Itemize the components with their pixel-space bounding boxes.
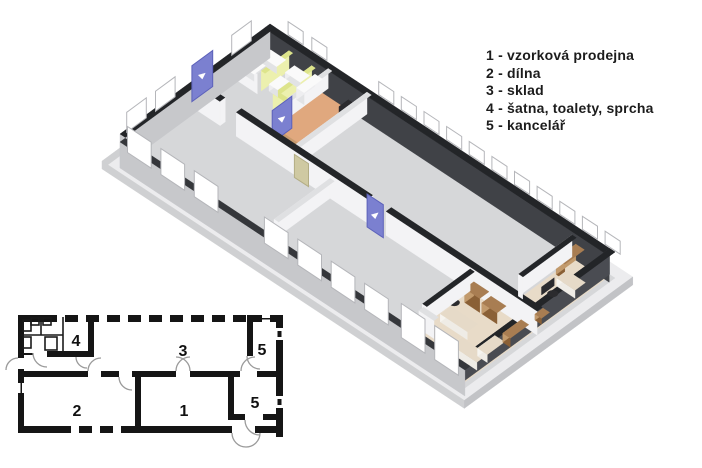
wall	[101, 371, 119, 377]
wall	[276, 408, 283, 437]
window-line	[21, 383, 23, 393]
toilet-fixture	[23, 337, 31, 348]
room-label-4: 4	[72, 333, 81, 350]
shower-fixture	[45, 337, 57, 350]
wall	[263, 414, 279, 420]
floorplan-figure: 4 3 5 2 1 5 1 - vzorková prodejna 2 - dí…	[0, 0, 702, 468]
2d-walls	[18, 315, 283, 437]
wall	[228, 377, 234, 417]
wall	[257, 371, 282, 377]
door-arc	[33, 353, 47, 367]
door-arc	[6, 358, 18, 370]
window-line	[262, 318, 270, 320]
room-label-5-top: 5	[258, 342, 267, 359]
legend: 1 - vzorková prodejna 2 - dílna 3 - skla…	[486, 47, 654, 135]
wall	[228, 414, 245, 420]
wall	[190, 371, 240, 377]
wall	[88, 315, 94, 357]
legend-item-5: 5 - kancelář	[486, 117, 654, 135]
window-square	[278, 399, 282, 405]
wall	[18, 426, 58, 433]
door-arc	[119, 377, 132, 390]
window-square	[278, 331, 282, 337]
wall-thin	[21, 353, 33, 355]
legend-item-1: 1 - vzorková prodejna	[486, 47, 654, 65]
legend-item-4: 4 - šatna, toalety, sprcha	[486, 100, 654, 118]
legend-item-2: 2 - dílna	[486, 65, 654, 83]
wall	[276, 315, 283, 328]
2d-stalls	[21, 317, 63, 351]
wall	[18, 369, 24, 383]
room-label-3: 3	[179, 343, 188, 360]
door-arc	[76, 357, 87, 368]
room-label-2: 2	[73, 403, 82, 420]
door-arc	[88, 358, 101, 371]
legend-item-3: 3 - sklad	[486, 82, 654, 100]
room-label-1: 1	[180, 403, 189, 420]
wall	[247, 315, 253, 356]
wall	[276, 340, 283, 396]
room-label-5-bottom: 5	[251, 395, 260, 412]
door-arc	[232, 433, 246, 447]
wall	[133, 426, 232, 433]
wall	[24, 371, 88, 377]
wall	[135, 377, 141, 433]
wall	[132, 371, 176, 377]
wall	[47, 351, 94, 357]
wall	[252, 315, 262, 322]
